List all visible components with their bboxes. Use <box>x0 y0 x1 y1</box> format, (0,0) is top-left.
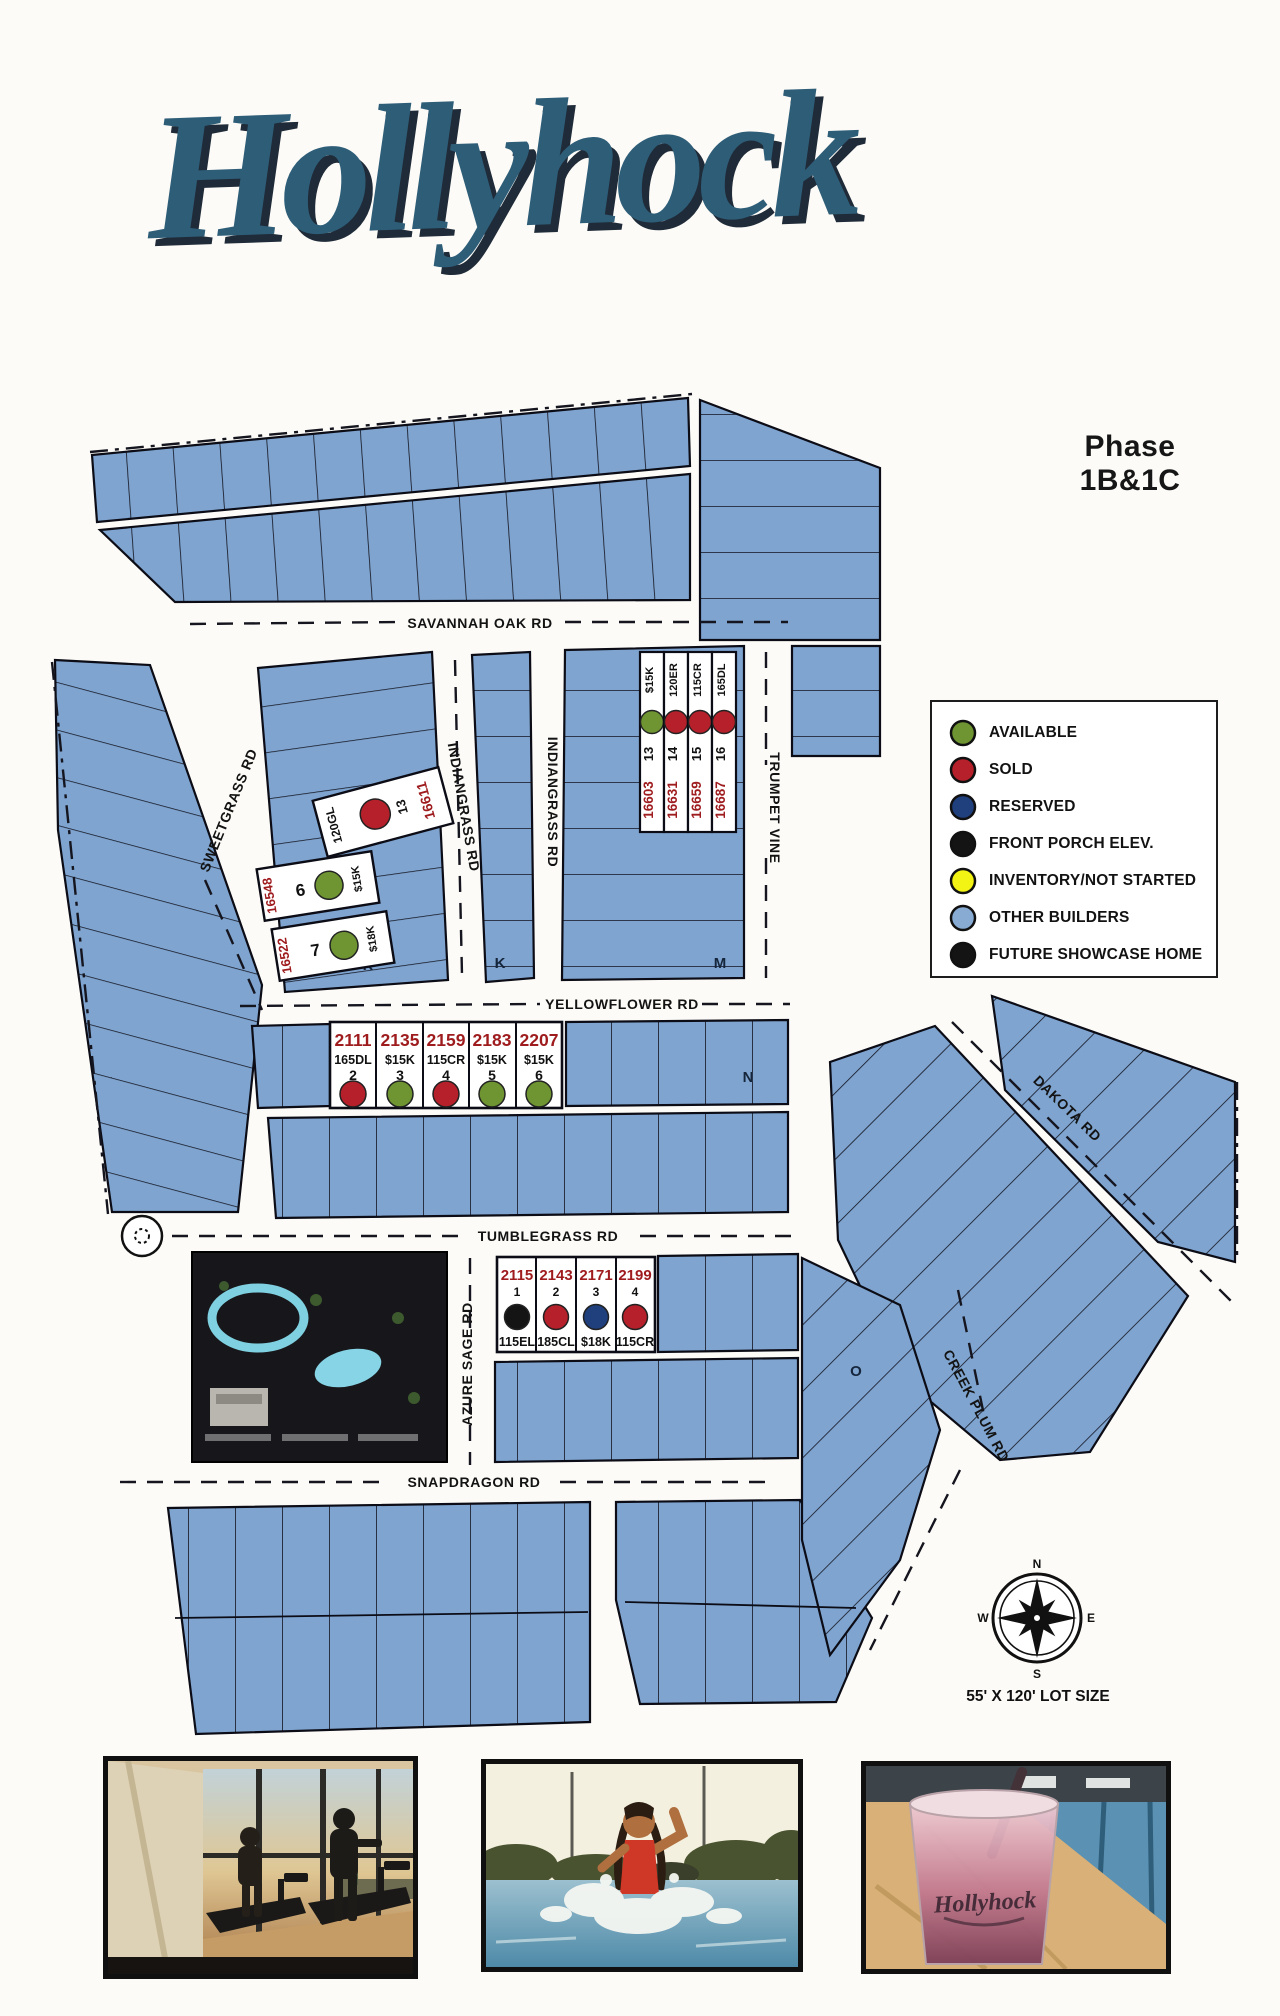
lot-address: 2111 <box>335 1030 372 1050</box>
status-dot <box>584 1305 609 1330</box>
lot-plan: 165DL <box>716 663 728 696</box>
future-showcase-dot-icon <box>951 943 975 967</box>
lot-number: 16 <box>713 747 728 761</box>
lot-number: 15 <box>689 747 704 761</box>
street-label-yellowflower: YELLOWFLOWER RD <box>545 996 699 1012</box>
other-builders-dot-icon <box>951 906 975 930</box>
reserved-dot-icon <box>951 795 975 819</box>
legend-label: INVENTORY/NOT STARTED <box>989 872 1196 890</box>
status-dot <box>387 1081 413 1107</box>
lot-plan: 120ER <box>668 663 680 697</box>
street-label-trumpet-vine: TRUMPET VINE <box>767 752 783 863</box>
lot-address: 2207 <box>520 1030 559 1050</box>
lot-address: 16659 <box>689 781 704 819</box>
amenity-building <box>210 1388 268 1426</box>
legend-box: AVAILABLE SOLD RESERVED FRONT PORCH ELEV… <box>930 700 1218 978</box>
status-dot <box>479 1081 505 1107</box>
featured-lot-16687: 165DL 16 16687 <box>712 652 736 832</box>
section-letter-K2: K <box>495 955 506 972</box>
lot-plan: $15K <box>477 1053 507 1067</box>
cup-logo-text: Hollyhock <box>932 1887 1037 1918</box>
status-dot <box>544 1305 569 1330</box>
status-dot <box>505 1305 530 1330</box>
legend-label: RESERVED <box>989 798 1076 816</box>
page-title-logo: Hollyhock <box>0 49 1003 284</box>
lot-plan: 115EL <box>499 1335 536 1349</box>
block-tg-right <box>658 1254 798 1352</box>
legend-row-front-porch: FRONT PORCH ELEV. <box>948 825 1216 862</box>
photo-fitness-center <box>103 1756 418 1979</box>
status-dot <box>713 711 736 734</box>
lot-plan: $15K <box>524 1053 554 1067</box>
lot-address: 2159 <box>427 1030 466 1050</box>
compass-e: E <box>1087 1611 1095 1625</box>
lot-number: 3 <box>593 1285 600 1299</box>
compass-n: N <box>1033 1557 1042 1571</box>
status-dot <box>526 1081 552 1107</box>
drink-cup-shape: Hollyhock <box>910 1772 1058 1964</box>
lot-address: 2143 <box>539 1267 572 1284</box>
legend-row-sold: SOLD <box>948 751 1216 788</box>
lot-address: 2115 <box>501 1267 534 1284</box>
lot-address: 16631 <box>665 781 680 819</box>
street-label-snapdragon: SNAPDRAGON RD <box>407 1474 540 1490</box>
lot-blocks <box>55 398 1235 1734</box>
legend-label: OTHER BUILDERS <box>989 909 1130 927</box>
community-map: SAVANNAH OAK RD SWEETGRASS RD INDIANGRAS… <box>0 0 1280 2016</box>
block-trumpet-east <box>792 646 880 756</box>
lot-plan: 115CR <box>616 1335 654 1349</box>
status-dot <box>433 1081 459 1107</box>
lot-plan: $15K <box>644 667 656 693</box>
front-porch-dot-icon <box>951 832 975 856</box>
lot-address: 2171 <box>579 1267 612 1284</box>
street-label-indiangrass-2: INDIANGRASS RD <box>545 737 561 868</box>
featured-lot-16603: $15K 13 16603 <box>640 652 664 832</box>
amenity-aerial-photo <box>192 1252 447 1462</box>
street-label-tumblegrass: TUMBLEGRASS RD <box>478 1228 619 1244</box>
status-dot <box>623 1305 648 1330</box>
featured-row-tumblegrass: 2115 1 115EL 2143 2 185CL 2171 3 $18K <box>497 1257 655 1352</box>
flyer-page: SAVANNAH OAK RD SWEETGRASS RD INDIANGRAS… <box>0 0 1280 2016</box>
lot-plan: $18K <box>581 1335 611 1349</box>
legend-row-future-showcase: FUTURE SHOWCASE HOME <box>948 936 1216 973</box>
block-yf-row2 <box>268 1112 788 1218</box>
legend-row-other-builders: OTHER BUILDERS <box>948 899 1216 936</box>
lot-plan: 115CR <box>692 663 704 697</box>
lot-address: 2135 <box>381 1030 420 1050</box>
featured-lot-16631: 120ER 14 16631 <box>664 652 688 832</box>
block-top-right <box>700 400 880 640</box>
legend-row-inventory: INVENTORY/NOT STARTED <box>948 862 1216 899</box>
legend-label: AVAILABLE <box>989 724 1077 742</box>
compass-s: S <box>1033 1667 1041 1681</box>
roundabout <box>122 1216 162 1256</box>
compass-w: W <box>977 1611 989 1625</box>
section-letter-M: M <box>714 955 727 972</box>
status-dot <box>665 711 688 734</box>
section-letter-O: O <box>850 1363 862 1380</box>
block-yf-left <box>252 1024 330 1108</box>
legend-row-reserved: RESERVED <box>948 788 1216 825</box>
lot-number: 2 <box>553 1285 560 1299</box>
section-letter-N: N <box>743 1069 754 1086</box>
lot-plan: 165DL <box>334 1053 372 1067</box>
legend-label: FRONT PORCH ELEV. <box>989 835 1154 853</box>
lot-address: 2183 <box>473 1030 512 1050</box>
lot-plan: 115CR <box>427 1053 465 1067</box>
block-K2 <box>472 652 534 982</box>
status-dot <box>340 1081 366 1107</box>
block-yf-right <box>566 1020 788 1106</box>
featured-cluster-trumpet: $15K 13 16603 120ER 14 16631 115CR 15 16… <box>640 652 736 832</box>
photo-pool-splash <box>481 1759 803 1972</box>
lot-address: 16687 <box>713 781 728 819</box>
lot-number: 14 <box>665 746 680 761</box>
legend-row-available: AVAILABLE <box>948 714 1216 751</box>
lot-address: 2199 <box>618 1267 651 1284</box>
lot-number: 1 <box>514 1285 521 1299</box>
street-label-savannah-oak: SAVANNAH OAK RD <box>407 615 552 631</box>
available-dot-icon <box>951 721 975 745</box>
lot-plan: 185CL <box>537 1335 575 1349</box>
lot-number: 4 <box>632 1285 639 1299</box>
compass-rose: N E S W <box>977 1557 1095 1681</box>
street-label-sweetgrass: SWEETGRASS RD <box>196 746 260 874</box>
featured-lot-16659: 115CR 15 16659 <box>688 652 712 832</box>
status-dot <box>641 711 664 734</box>
legend-label: FUTURE SHOWCASE HOME <box>989 946 1202 964</box>
photo-poolside-drink: Hollyhock <box>861 1761 1171 1974</box>
block-west-strip <box>55 660 262 1212</box>
street-label-azure-sage: AZURE SAGE RD <box>459 1302 475 1426</box>
featured-row-yellowflower: 2111 165DL 2 2135 $15K 3 2159 115CR 4 <box>330 1022 562 1108</box>
lot-size-note: 55' X 120' LOT SIZE <box>928 1688 1148 1706</box>
lot-number: 13 <box>641 747 656 761</box>
gym-wall <box>108 1761 203 1974</box>
block-tg-row2 <box>495 1358 798 1462</box>
inventory-dot-icon <box>951 869 975 893</box>
status-dot <box>689 711 712 734</box>
legend-label: SOLD <box>989 761 1033 779</box>
lot-address: 16603 <box>641 781 656 819</box>
sold-dot-icon <box>951 758 975 782</box>
phase-label: Phase 1B&1C <box>1030 430 1230 498</box>
lot-plan: $15K <box>385 1053 415 1067</box>
